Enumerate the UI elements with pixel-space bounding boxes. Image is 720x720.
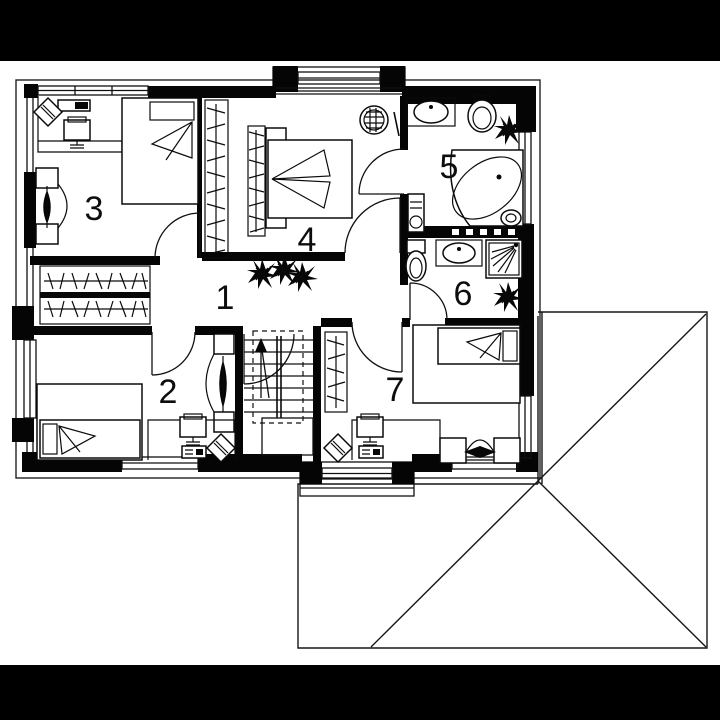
letterbox-bottom bbox=[0, 665, 720, 720]
room-number-label: 5 bbox=[440, 148, 459, 186]
keyboard-icon bbox=[58, 100, 90, 111]
room-number-label: 3 bbox=[85, 190, 104, 228]
room-number-label: 6 bbox=[454, 275, 473, 313]
floor-plan: 1 2 3 4 5 6 7 bbox=[0, 0, 720, 720]
single-bed-icon bbox=[122, 98, 198, 204]
towel-warmer-icon bbox=[408, 194, 424, 232]
room-number-label: 2 bbox=[159, 373, 178, 411]
letterbox-top bbox=[0, 0, 720, 61]
single-bed-icon bbox=[37, 384, 142, 460]
double-bed-icon bbox=[266, 128, 352, 228]
shower-icon bbox=[486, 240, 522, 278]
printer-icon bbox=[182, 446, 206, 458]
room-number-label: 7 bbox=[386, 371, 405, 409]
room-number-label: 4 bbox=[298, 221, 317, 259]
laundry-basket-icon bbox=[360, 106, 388, 134]
single-bed-icon bbox=[413, 325, 520, 403]
room-number-label: 1 bbox=[216, 279, 235, 317]
toilet-icon bbox=[406, 240, 426, 281]
printer-icon bbox=[359, 446, 383, 458]
